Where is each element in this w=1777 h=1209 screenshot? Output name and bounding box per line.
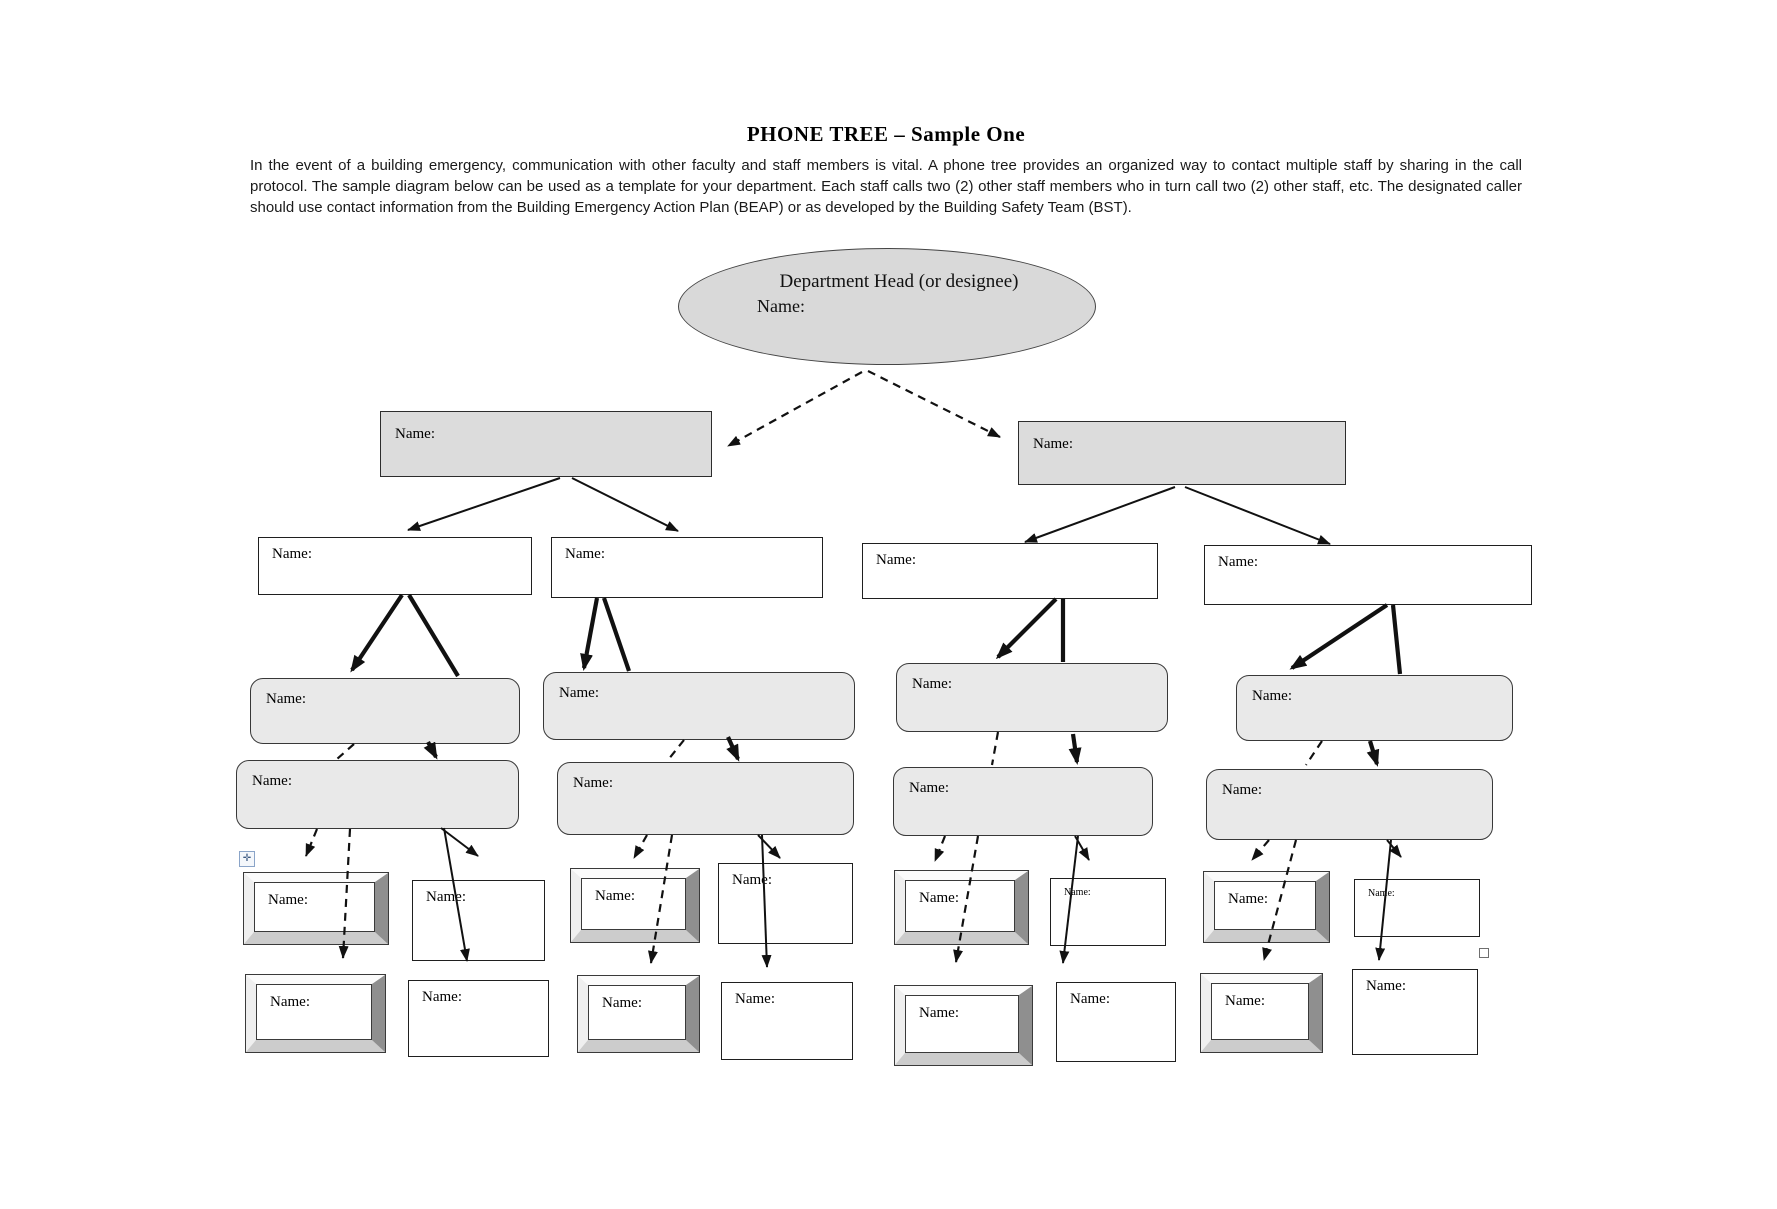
node-l4-plain-b[interactable]: Name: [718, 863, 853, 944]
node-l3a-c[interactable]: Name: [896, 663, 1168, 732]
node-l5-bevel-d[interactable]: Name: [1200, 973, 1323, 1053]
node-l3a-d[interactable]: Name: [1236, 675, 1513, 741]
name-label: Name: [259, 538, 531, 563]
node-l3a-b[interactable]: Name: [543, 672, 855, 740]
name-label: Name: [894, 768, 1152, 797]
node-l4-bevel-a[interactable]: Name: [243, 872, 389, 945]
node-l2-b[interactable]: Name: [551, 537, 823, 598]
node-l4-bevel-d[interactable]: Name: [1203, 871, 1330, 943]
node-l4-bevel-b[interactable]: Name: [570, 868, 700, 943]
bevel-frame: Name: [1201, 974, 1322, 1052]
node-l3b-a[interactable]: Name: [236, 760, 519, 829]
name-label: Name: [1207, 770, 1492, 799]
node-l4-plain-c[interactable]: Name: [1050, 878, 1166, 946]
node-l2-a[interactable]: Name: [258, 537, 532, 595]
node-l5-bevel-b[interactable]: Name: [577, 975, 700, 1053]
name-label: Name: [582, 879, 685, 905]
name-label: Name: [1212, 984, 1308, 1010]
name-label: Name: [1205, 546, 1531, 571]
document-page: PHONE TREE – Sample One In the event of … [0, 0, 1777, 1209]
node-department-head[interactable]: Department Head (or designee) Name: [678, 248, 1096, 365]
phone-tree-diagram: Department Head (or designee) Name: Name… [0, 0, 1777, 1209]
name-label: Name: [255, 883, 374, 909]
name-label: Name: [589, 986, 685, 1012]
name-label: Name: [1353, 970, 1477, 995]
name-label: Name: [544, 673, 854, 702]
name-label: Name: [237, 761, 518, 790]
node-l5-bevel-c[interactable]: Name: [894, 985, 1033, 1066]
node-l1-right[interactable]: Name: [1018, 421, 1346, 485]
node-l4-plain-a[interactable]: Name: [412, 880, 545, 961]
node-l1-left[interactable]: Name: [380, 411, 712, 477]
node-l3b-d[interactable]: Name: [1206, 769, 1493, 840]
name-label: Name: [552, 538, 822, 563]
node-l5-plain-b[interactable]: Name: [721, 982, 853, 1060]
name-label: Name: [1355, 880, 1479, 899]
name-label: Name: [1051, 879, 1165, 898]
name-label: Name: [906, 881, 1014, 907]
node-l5-plain-d[interactable]: Name: [1352, 969, 1478, 1055]
name-label: Name: [413, 881, 544, 906]
name-label: Name: [679, 296, 1095, 317]
node-l3a-a[interactable]: Name: [250, 678, 520, 744]
move-handle-icon[interactable]: ✛ [239, 851, 255, 867]
node-l3b-b[interactable]: Name: [557, 762, 854, 835]
connectors-level1 [408, 478, 1330, 544]
node-l5-bevel-a[interactable]: Name: [245, 974, 386, 1053]
bevel-frame: Name: [895, 986, 1032, 1065]
name-label: Name: [1215, 882, 1315, 908]
name-label: Name: [251, 679, 519, 708]
bevel-frame: Name: [895, 871, 1028, 944]
department-head-title: Department Head (or designee) [679, 271, 1095, 293]
name-label: Name: [409, 981, 548, 1006]
name-label: Name: [381, 412, 711, 443]
node-l2-d[interactable]: Name: [1204, 545, 1532, 605]
name-label: Name: [1019, 422, 1345, 453]
node-l5-plain-c[interactable]: Name: [1056, 982, 1176, 1062]
name-label: Name: [722, 983, 852, 1008]
connectors-root [728, 371, 1000, 446]
name-label: Name: [719, 864, 852, 889]
name-label: Name: [257, 985, 371, 1011]
name-label: Name: [558, 763, 853, 792]
node-l4-bevel-c[interactable]: Name: [894, 870, 1029, 945]
bevel-frame: Name: [571, 869, 699, 942]
name-label: Name: [1237, 676, 1512, 705]
name-label: Name: [863, 544, 1157, 569]
bevel-frame: Name: [578, 976, 699, 1052]
anchor-square-icon [1479, 948, 1489, 958]
bevel-frame: Name: [244, 873, 388, 944]
node-l4-plain-d[interactable]: Name: [1354, 879, 1480, 937]
node-l3b-c[interactable]: Name: [893, 767, 1153, 836]
name-label: Name: [906, 996, 1018, 1022]
name-label: Name: [897, 664, 1167, 693]
node-l2-c[interactable]: Name: [862, 543, 1158, 599]
bevel-frame: Name: [246, 975, 385, 1052]
bevel-frame: Name: [1204, 872, 1329, 942]
name-label: Name: [1057, 983, 1175, 1008]
node-l5-plain-a[interactable]: Name: [408, 980, 549, 1057]
